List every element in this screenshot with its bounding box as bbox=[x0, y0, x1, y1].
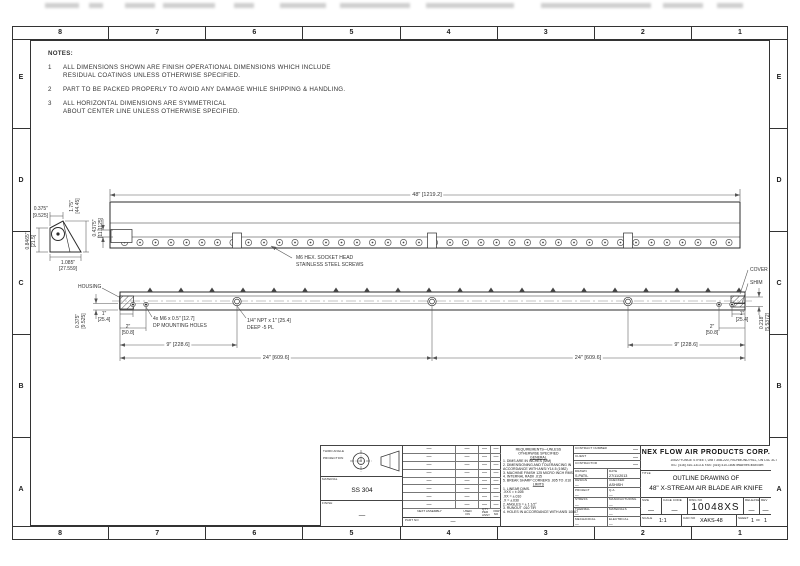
dim-9in-left: 9" [228.6] bbox=[164, 342, 191, 348]
dim-line: [9.525] bbox=[81, 313, 87, 328]
dim-9in-right: 9" [228.6] bbox=[672, 342, 699, 348]
admin-grid-cell: STRESS— bbox=[574, 498, 608, 508]
cage-code-label: CAGE CODE bbox=[663, 499, 682, 502]
callout-line: 1/4" NPT x 1" [25.4] bbox=[247, 318, 291, 325]
dim-line: [27.559] bbox=[59, 266, 77, 272]
admin-grid-value: S.PATIL bbox=[575, 474, 588, 478]
sheet-value: 1 bbox=[751, 518, 754, 524]
admin-grid-label: THERMAL bbox=[575, 508, 590, 511]
note-number: 3 bbox=[48, 100, 52, 107]
admin-grid-label: ELECTRICAL bbox=[609, 518, 629, 521]
sheet-of-label: OF bbox=[756, 519, 760, 522]
admin-grid-cell: DESIGN— bbox=[574, 479, 608, 489]
finish-value: — bbox=[321, 512, 403, 519]
company-cell: NEX FLOW AIR PRODUCTS CORP. 10520 YONGE … bbox=[641, 446, 771, 471]
parts-table-cell: — bbox=[403, 478, 456, 486]
part-no-value: — bbox=[433, 519, 473, 525]
parts-table-cell: — bbox=[491, 501, 501, 509]
parts-table-cell: — bbox=[491, 446, 501, 454]
admin-field-row: CONTRACTOR— bbox=[574, 461, 641, 469]
admin-grid-value: — bbox=[609, 522, 613, 526]
dim-screw-plate-height: 0.4375" [11.1125] bbox=[92, 218, 104, 238]
parts-table-section: ———————————————————————————————— NEXT AS… bbox=[403, 446, 501, 527]
dim-2in-left: 2" [50.8] bbox=[122, 324, 135, 337]
projection-cell: THIRD ANGLE PROJECTION bbox=[321, 446, 403, 477]
parts-table-cell: — bbox=[403, 501, 456, 509]
parts-table-cell: — bbox=[403, 493, 456, 501]
admin-grid-cell: CHECKEDASHISH bbox=[608, 479, 642, 489]
release-cell: RELEASE — bbox=[744, 498, 760, 515]
shim-label: SHIM bbox=[750, 280, 763, 287]
cad-no-label: CAD NO bbox=[683, 517, 695, 520]
parts-table-cell: — bbox=[456, 470, 479, 478]
parts-table-cell: — bbox=[491, 493, 501, 501]
callout-line: DEEP -5 PL bbox=[247, 325, 291, 332]
material-value: SS 304 bbox=[321, 487, 403, 494]
admin-field-row: CLIENT— bbox=[574, 454, 641, 462]
parts-table-cell: — bbox=[456, 493, 479, 501]
dim-24in-right: 24" [609.6] bbox=[573, 355, 603, 361]
parts-table-cell: — bbox=[403, 454, 456, 462]
parts-table-cell: — bbox=[456, 478, 479, 486]
scale-label: SCALE bbox=[642, 517, 652, 520]
sheet-label: SHEET bbox=[738, 517, 749, 520]
admin-grid-cell: MATERIALS— bbox=[608, 508, 642, 518]
admin-field-label: CONTRACT NUMBER bbox=[575, 447, 607, 450]
parts-table-row: ———— bbox=[403, 462, 501, 470]
rev-value: — bbox=[760, 508, 771, 514]
admin-grid-cell: MANUFACTURING— bbox=[608, 498, 642, 508]
scale-row: SCALE 1:1 CAD NO XAKS-48 SHEET 1 OF 1 bbox=[641, 515, 771, 527]
parts-table-row: ———— bbox=[403, 470, 501, 478]
parts-table-cell: — bbox=[479, 478, 491, 486]
sheet-total-value: 1 bbox=[764, 518, 767, 524]
mounting-holes-callout: 4x M6 x 0.5" [12.7] DP MOUNTING HOLES bbox=[153, 316, 207, 330]
admin-grid-value: — bbox=[609, 513, 613, 517]
screw-callout: M6 HEX. SOCKET HEAD STAINLESS STEEL SCRE… bbox=[296, 255, 364, 269]
dim-lip: 0.375" [9.525] bbox=[75, 313, 87, 328]
note-line: ALL DIMENSIONS SHOWN ARE FINISH OPERATIO… bbox=[63, 64, 331, 71]
title-label: TITLE bbox=[642, 472, 651, 475]
rev-label: REV bbox=[761, 499, 767, 502]
dim-line: [25.4] bbox=[98, 317, 111, 323]
notes-title: NOTES: bbox=[48, 50, 73, 57]
projection-material-section: THIRD ANGLE PROJECTION MATERIAL SS 304 bbox=[321, 446, 403, 527]
parts-table-cell: — bbox=[403, 485, 456, 493]
admin-grid-cell: ELECTRICAL— bbox=[608, 517, 642, 527]
admin-field-label: CONTRACTOR bbox=[575, 462, 597, 465]
parts-table-cell: — bbox=[479, 446, 491, 454]
dwg-no-value: 10048XS bbox=[688, 502, 743, 513]
parts-table-row: ———— bbox=[403, 485, 501, 493]
parts-table-cell: — bbox=[403, 462, 456, 470]
note-line: ABOUT CENTER LINE UNLESS OTHERWISE SPECI… bbox=[63, 108, 240, 115]
admin-grid: DRAWNS.PATILDATE27/11/2013DESIGN—CHECKED… bbox=[574, 469, 641, 527]
parts-table-cell: — bbox=[479, 485, 491, 493]
admin-grid-label: MATERIALS bbox=[609, 508, 627, 511]
scan-artifact bbox=[45, 3, 755, 21]
requirements-section: REQUIREMENTS—UNLESSOTHERWISE SPECIFIEDGE… bbox=[501, 446, 574, 527]
admin-field-value: — bbox=[633, 455, 638, 461]
company-section: NEX FLOW AIR PRODUCTS CORP. 10520 YONGE … bbox=[641, 446, 771, 527]
admin-grid-cell: MECHANICAL— bbox=[574, 517, 608, 527]
admin-grid-label: DRAWN bbox=[575, 470, 587, 473]
admin-grid-label: STRESS bbox=[575, 498, 588, 501]
parts-table-cell: — bbox=[479, 462, 491, 470]
admin-grid-cell: PROJECT— bbox=[574, 488, 608, 498]
drawing-title-line1: OUTLINE DRAWING OF bbox=[641, 476, 771, 482]
parts-table-cell: — bbox=[456, 446, 479, 454]
col-header: NEXT ASSEMBLY bbox=[416, 510, 443, 513]
note-line: PART TO BE PACKED PROPERLY TO AVOID ANY … bbox=[63, 86, 345, 93]
parts-table-cell: — bbox=[403, 470, 456, 478]
parts-table-header: NEXT ASSEMBLY USED ON QTY PER ASSY PART … bbox=[403, 509, 501, 518]
dim-line: [50.8] bbox=[122, 330, 135, 336]
admin-grid-label: MANUFACTURING bbox=[609, 498, 636, 501]
admin-grid-label: CHECKED bbox=[609, 479, 624, 482]
title-block: THIRD ANGLE PROJECTION MATERIAL SS 304 bbox=[320, 445, 770, 526]
admin-grid-cell: THERMAL— bbox=[574, 508, 608, 518]
note-line: RESIDUAL COATINGS UNLESS OTHERWISE SPECI… bbox=[63, 72, 240, 79]
callout-line: M6 HEX. SOCKET HEAD bbox=[296, 255, 364, 262]
parts-table-cell: — bbox=[491, 485, 501, 493]
parts-table-cell: — bbox=[456, 454, 479, 462]
size-cell: SIZE — bbox=[641, 498, 662, 515]
dim-profile-top-width: 0.375" [9.525] bbox=[20, 206, 48, 220]
parts-table-cell: — bbox=[456, 462, 479, 470]
note-number: 1 bbox=[48, 64, 52, 71]
note-number: 2 bbox=[48, 86, 52, 93]
scale-value: 1:1 bbox=[659, 518, 667, 524]
admin-grid-value: 27/11/2013 bbox=[609, 474, 627, 478]
admin-grid-cell: DATE27/11/2013 bbox=[608, 469, 642, 479]
dim-profile-height: 1.75" [44.45] bbox=[69, 198, 81, 213]
admin-grid-label: PROJECT bbox=[575, 489, 590, 492]
size-label: SIZE bbox=[642, 499, 649, 502]
dim-line: 0.375" bbox=[20, 206, 48, 213]
parts-table-rows: ———————————————————————————————— bbox=[403, 446, 501, 509]
dim-profile-bottom-width: 1.085" [27.559] bbox=[59, 260, 77, 273]
dim-line: [44.45] bbox=[75, 198, 81, 213]
dim-24in-left: 24" [609.6] bbox=[261, 355, 291, 361]
scale-cell: SCALE 1:1 bbox=[641, 515, 682, 527]
parts-table-cell: — bbox=[479, 454, 491, 462]
dim-2in-right: 2" [50.8] bbox=[706, 324, 719, 337]
admin-section: CONTRACT NUMBER—CLIENT—CONTRACTOR— DRAWN… bbox=[574, 446, 641, 527]
npt-port-callout: 1/4" NPT x 1" [25.4] DEEP -5 PL bbox=[247, 318, 291, 332]
part-no-label: PART NO bbox=[405, 519, 419, 522]
company-address: 10520 YONGE STREET, UNIT 35B-220, RICHMO… bbox=[670, 459, 742, 462]
cage-code-value: — bbox=[662, 508, 687, 514]
parts-table-row: ———— bbox=[403, 446, 501, 454]
dim-line: [11.1125] bbox=[98, 218, 104, 238]
parts-table-cell: — bbox=[479, 493, 491, 501]
dim-line: [25.4] bbox=[736, 317, 749, 323]
company-phone: TEL: (416) 410-1313 & FAX: (416) 410-180… bbox=[670, 464, 742, 467]
col-header: USED ON bbox=[462, 510, 474, 516]
parts-table-cell: — bbox=[491, 454, 501, 462]
cage-code-cell: CAGE CODE — bbox=[662, 498, 688, 515]
admin-field-label: CLIENT bbox=[575, 455, 586, 458]
title-cell: TITLE OUTLINE DRAWING OF 48" X-STREAM AI… bbox=[641, 471, 771, 498]
admin-grid-label: DATE bbox=[609, 470, 617, 473]
release-value: — bbox=[744, 508, 759, 514]
dim-1in-right: 1" [25.4] bbox=[736, 311, 749, 324]
admin-grid-value: — bbox=[575, 513, 579, 517]
admin-field-value: — bbox=[633, 447, 638, 453]
release-label: RELEASE bbox=[745, 499, 760, 502]
admin-grid-label: DESIGN bbox=[575, 479, 587, 482]
cad-no-cell: CAD NO XAKS-48 bbox=[682, 515, 737, 527]
parts-table-cell: — bbox=[491, 478, 501, 486]
rev-cell: REV — bbox=[760, 498, 771, 515]
material-cell: MATERIAL SS 304 bbox=[321, 477, 403, 501]
cover-label: COVER bbox=[750, 267, 768, 274]
dim-line: [9.525] bbox=[20, 213, 48, 220]
admin-grid-label: Q.A. bbox=[609, 489, 615, 492]
drawing-sheet: EDCBA EDCBA 87654321 87654321 NOTES: 1 A… bbox=[0, 0, 800, 566]
admin-grid-label: MECHANICAL bbox=[575, 518, 596, 521]
admin-top-fields: CONTRACT NUMBER—CLIENT—CONTRACTOR— bbox=[574, 446, 641, 469]
admin-grid-value: — bbox=[609, 503, 613, 507]
dim-air-gap: 0.218" [5.5372] bbox=[759, 313, 771, 331]
parts-table-cell: — bbox=[456, 501, 479, 509]
note-line: ALL HORIZONTAL DIMENSIONS ARE SYMMETRICA… bbox=[63, 100, 226, 107]
callout-line: 4x M6 x 0.5" [12.7] bbox=[153, 316, 207, 323]
drawing-title-line2: 48" X-STREAM AIR BLADE AIR KNIFE bbox=[641, 485, 771, 492]
requirements-lines: REQUIREMENTS—UNLESSOTHERWISE SPECIFIEDGE… bbox=[503, 448, 574, 515]
col-header: PART NO bbox=[494, 510, 499, 516]
requirements-line: 4. HOLES IN ACCORDANCE WITH ANSI 10087 bbox=[503, 511, 574, 515]
dwg-no-cell: DWG NO 10048XS bbox=[688, 498, 744, 515]
callout-line: STAINLESS STEEL SCREWS bbox=[296, 262, 364, 269]
parts-table-row: ———— bbox=[403, 493, 501, 501]
third-angle-symbol bbox=[323, 446, 403, 476]
parts-table-cell: — bbox=[456, 485, 479, 493]
size-value: — bbox=[641, 508, 661, 514]
number-row: SIZE — CAGE CODE — DWG NO 10048XS RELEAS… bbox=[641, 498, 771, 515]
callout-line: DP MOUNTING HOLES bbox=[153, 323, 207, 330]
dim-line: [50.8] bbox=[706, 330, 719, 336]
col-header: QTY PER ASSY bbox=[482, 508, 488, 517]
sheet-cell: SHEET 1 OF 1 bbox=[737, 515, 771, 527]
admin-field-row: CONTRACT NUMBER— bbox=[574, 446, 641, 454]
admin-grid-value: — bbox=[575, 484, 579, 488]
dim-line: [21.5] bbox=[31, 232, 37, 249]
parts-table-cell: — bbox=[491, 470, 501, 478]
finish-cell: FINISH — bbox=[321, 501, 403, 527]
dim-overall-length: 48" [1219.2] bbox=[410, 192, 443, 198]
dim-line: [5.5372] bbox=[765, 313, 771, 331]
admin-grid-value: — bbox=[609, 493, 613, 497]
admin-grid-value: — bbox=[575, 503, 579, 507]
cad-no-value: XAKS-48 bbox=[700, 518, 723, 524]
finish-label: FINISH bbox=[322, 502, 332, 505]
parts-table-row: ———— bbox=[403, 454, 501, 462]
parts-table-cell: — bbox=[491, 462, 501, 470]
admin-field-value: — bbox=[633, 462, 638, 468]
parts-table-cell: — bbox=[479, 470, 491, 478]
dim-1in-left: 1" [25.4] bbox=[98, 311, 111, 324]
admin-grid-value: — bbox=[575, 522, 579, 526]
material-label: MATERIAL bbox=[322, 478, 338, 481]
housing-label: HOUSING bbox=[78, 284, 101, 291]
dim-profile-left-height: 0.8465" [21.5] bbox=[25, 232, 37, 249]
company-name: NEX FLOW AIR PRODUCTS CORP. bbox=[641, 449, 771, 456]
admin-grid-value: — bbox=[575, 493, 579, 497]
admin-grid-cell: DRAWNS.PATIL bbox=[574, 469, 608, 479]
admin-grid-cell: Q.A.— bbox=[608, 488, 642, 498]
parts-table-row: ———— bbox=[403, 478, 501, 486]
parts-table-cell: — bbox=[403, 446, 456, 454]
admin-grid-value: ASHISH bbox=[609, 484, 623, 488]
